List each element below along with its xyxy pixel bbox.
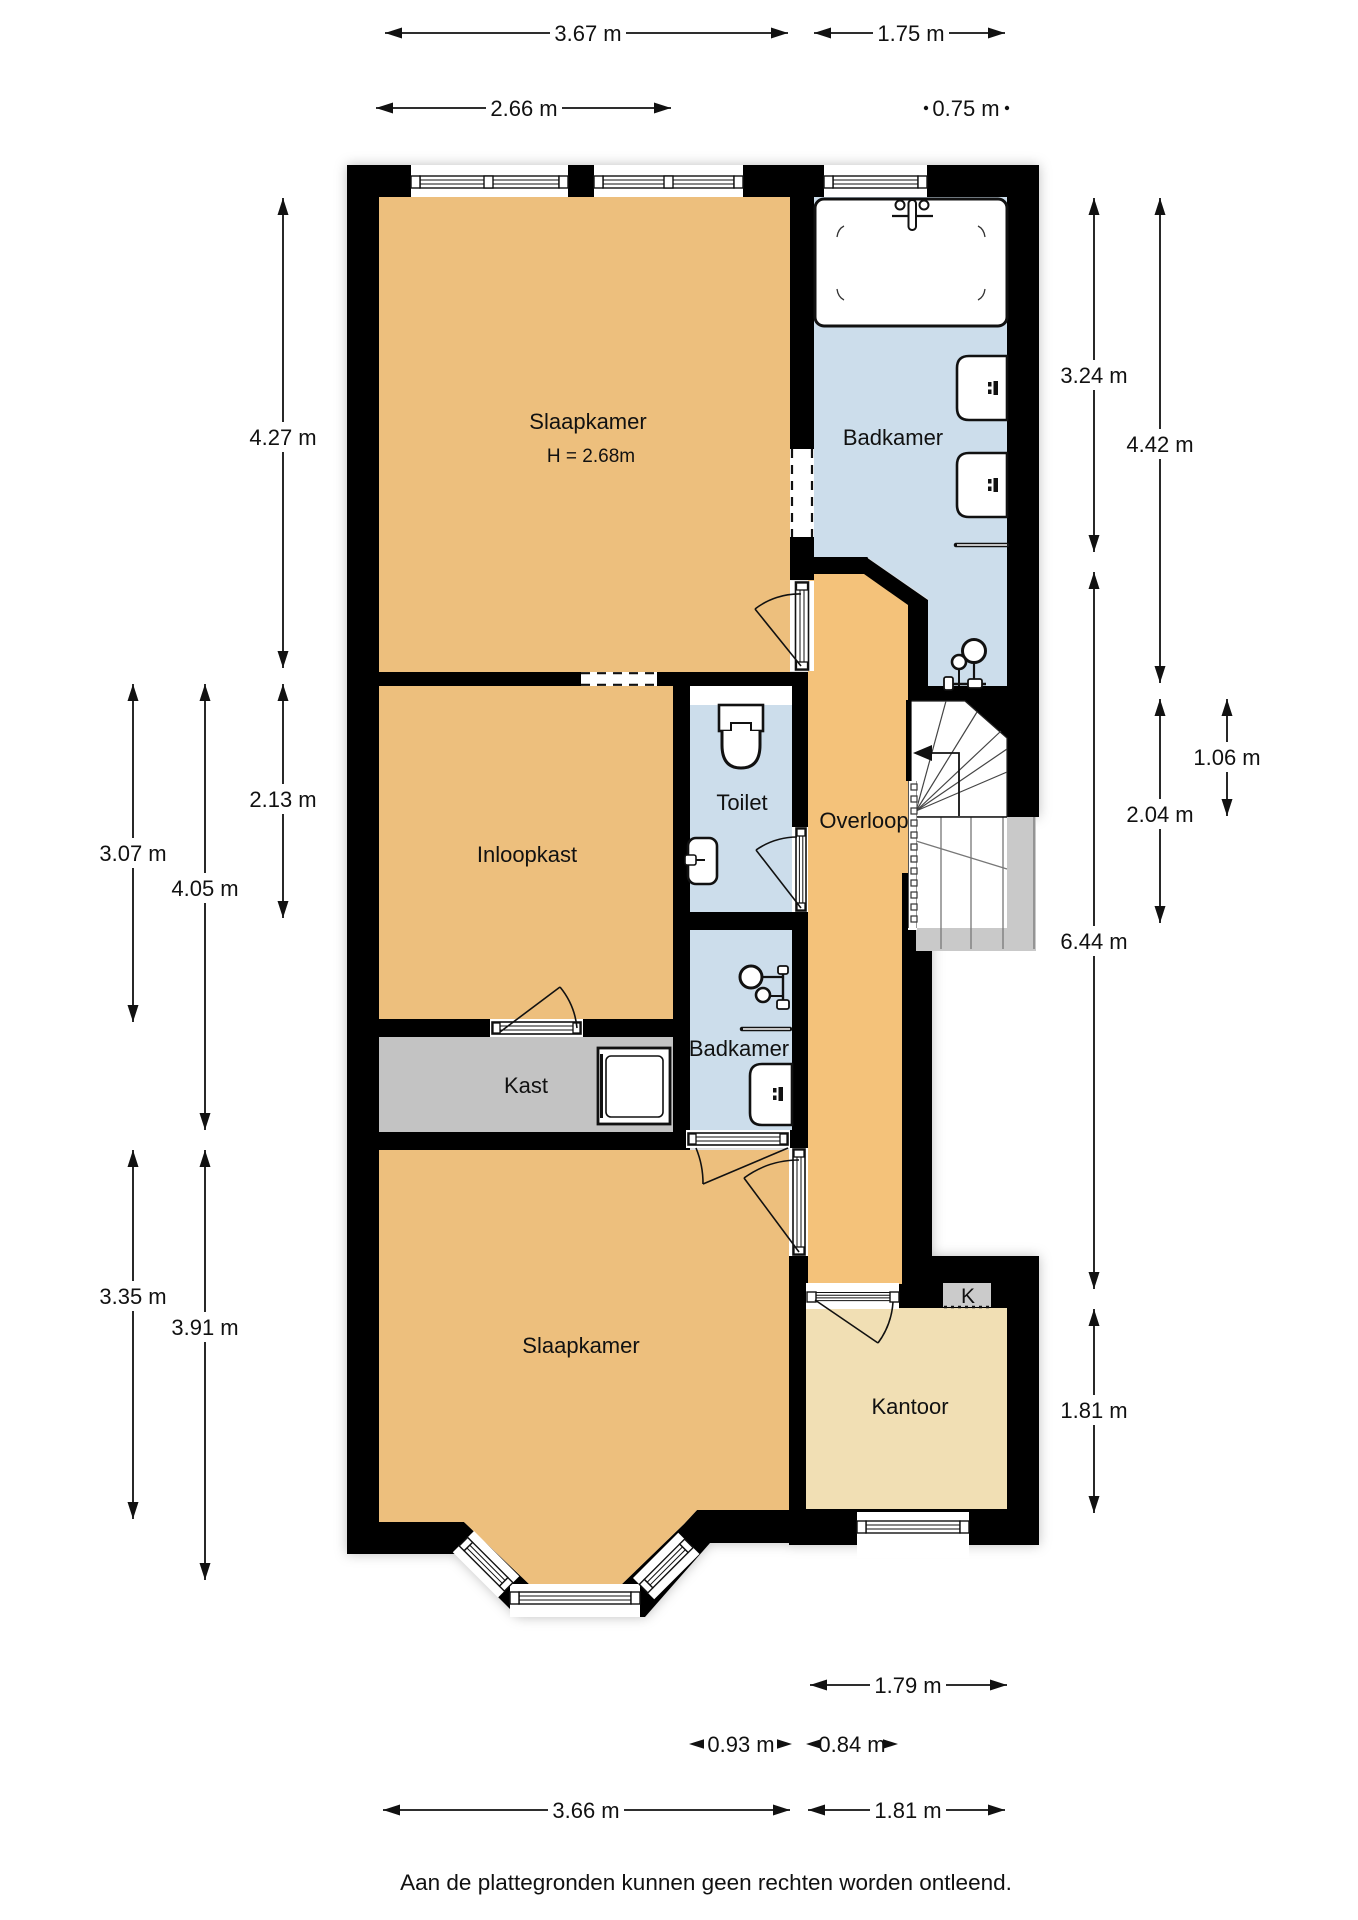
svg-text:Kast: Kast	[504, 1073, 548, 1098]
svg-text:1.06 m: 1.06 m	[1193, 745, 1260, 770]
svg-text:Inloopkast: Inloopkast	[477, 842, 577, 867]
svg-text:Badkamer: Badkamer	[689, 1036, 789, 1061]
svg-text:4.42 m: 4.42 m	[1126, 432, 1193, 457]
svg-text:1.81 m: 1.81 m	[1060, 1398, 1127, 1423]
svg-text:3.91 m: 3.91 m	[171, 1315, 238, 1340]
svg-text:3.35 m: 3.35 m	[99, 1284, 166, 1309]
svg-text:4.05 m: 4.05 m	[171, 876, 238, 901]
svg-text:3.66 m: 3.66 m	[552, 1798, 619, 1823]
svg-text:2.13 m: 2.13 m	[249, 787, 316, 812]
svg-text:1.79 m: 1.79 m	[874, 1673, 941, 1698]
svg-text:2.04 m: 2.04 m	[1126, 802, 1193, 827]
svg-text:H = 2.68m: H = 2.68m	[547, 446, 635, 467]
svg-text:Badkamer: Badkamer	[843, 425, 943, 450]
svg-text:4.27 m: 4.27 m	[249, 425, 316, 450]
svg-text:1.81 m: 1.81 m	[874, 1798, 941, 1823]
svg-text:Toilet: Toilet	[716, 790, 767, 815]
svg-text:Overloop: Overloop	[819, 808, 908, 833]
svg-text:Kantoor: Kantoor	[871, 1394, 948, 1419]
svg-text:0.75 m: 0.75 m	[932, 96, 999, 121]
svg-text:0.84 m: 0.84 m	[818, 1732, 885, 1757]
svg-text:1.75 m: 1.75 m	[877, 21, 944, 46]
svg-text:3.07 m: 3.07 m	[99, 841, 166, 866]
svg-text:K: K	[961, 1285, 975, 1308]
svg-text:Slaapkamer: Slaapkamer	[529, 409, 646, 434]
svg-text:Slaapkamer: Slaapkamer	[522, 1333, 639, 1358]
svg-text:3.67 m: 3.67 m	[554, 21, 621, 46]
svg-text:2.66 m: 2.66 m	[490, 96, 557, 121]
svg-text:3.24 m: 3.24 m	[1060, 363, 1127, 388]
svg-text:Aan de plattegronden kunnen ge: Aan de plattegronden kunnen geen rechten…	[400, 1870, 1012, 1895]
svg-text:6.44 m: 6.44 m	[1060, 929, 1127, 954]
svg-text:0.93 m: 0.93 m	[707, 1732, 774, 1757]
